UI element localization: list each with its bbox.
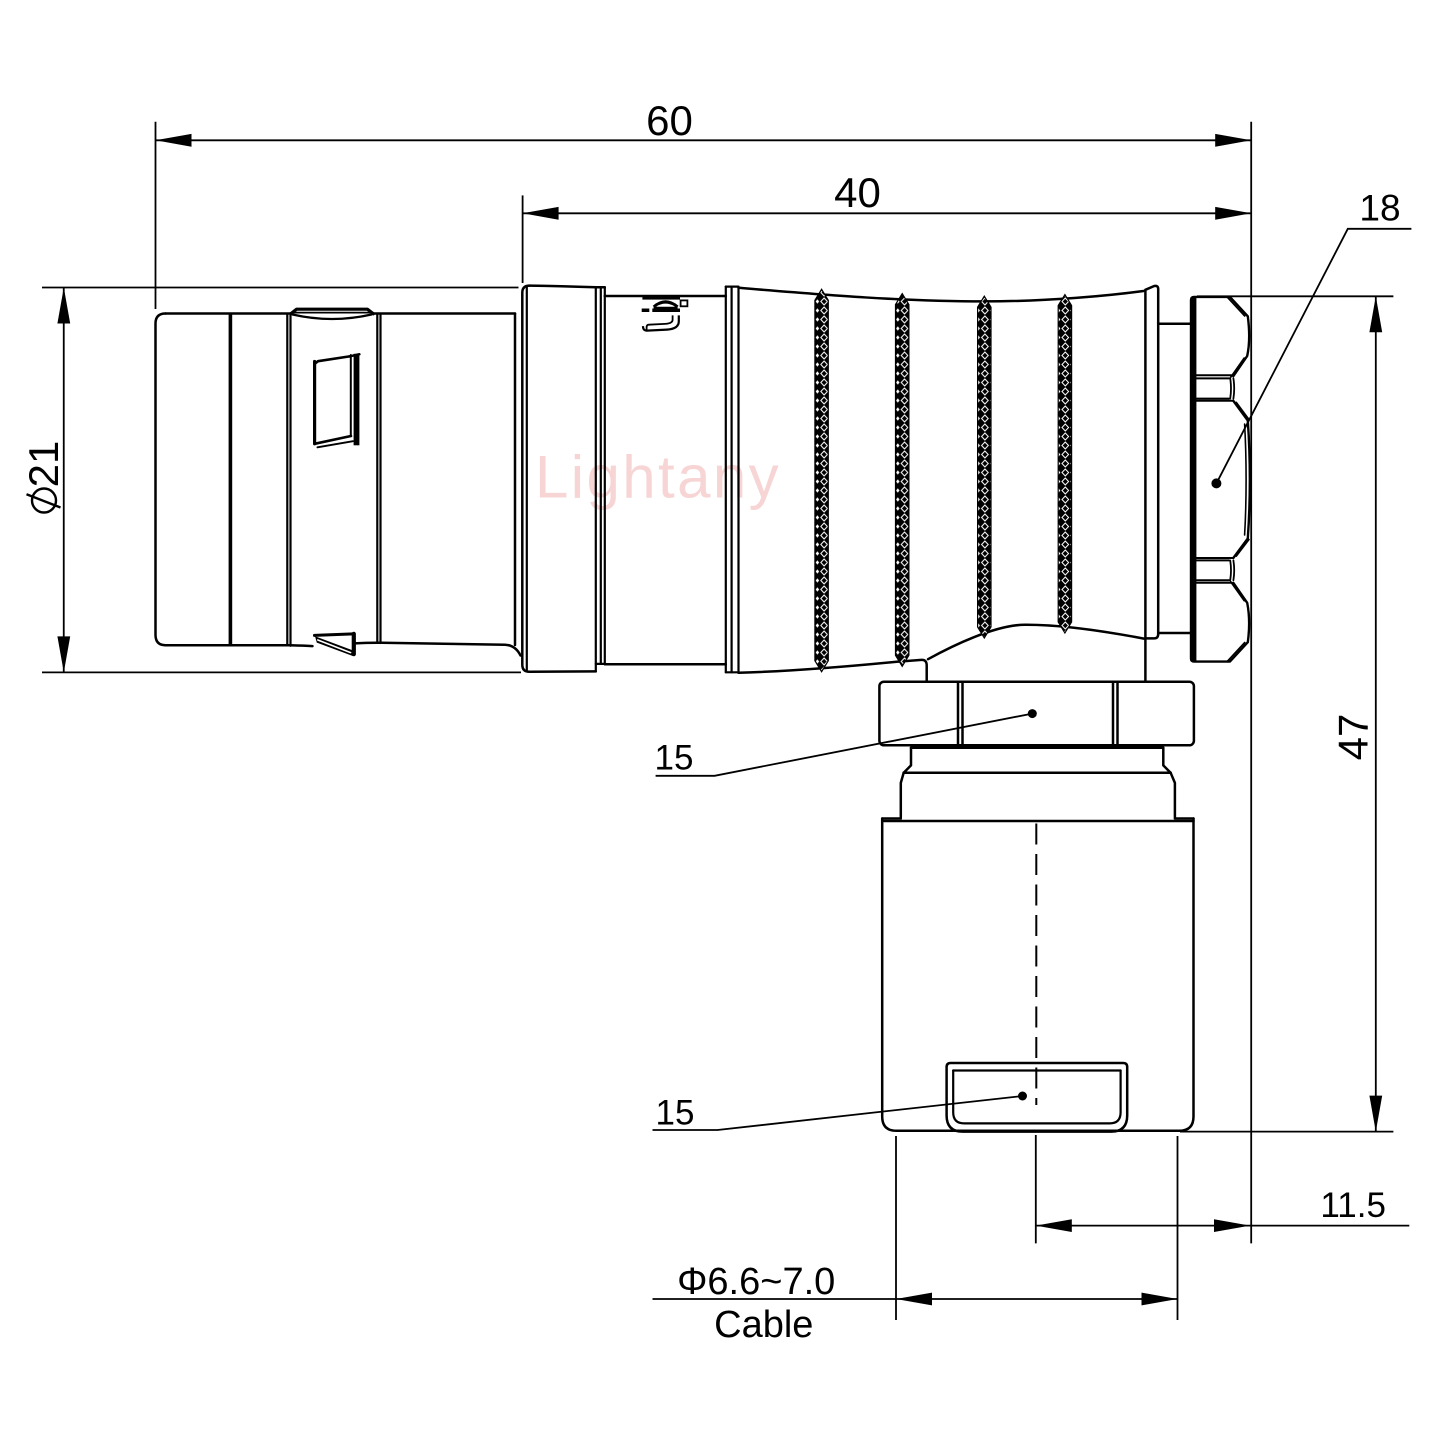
svg-text:40: 40 [834, 169, 881, 216]
svg-text:Lightany: Lightany [535, 444, 781, 511]
svg-text:21: 21 [20, 441, 67, 488]
svg-text:15: 15 [655, 739, 694, 778]
svg-text:60: 60 [646, 97, 693, 144]
svg-text:Φ6.6~7.0: Φ6.6~7.0 [677, 1261, 835, 1303]
svg-text:18: 18 [1359, 188, 1400, 229]
svg-text:15: 15 [656, 1094, 695, 1133]
svg-text:11.5: 11.5 [1320, 1186, 1386, 1225]
svg-text:47: 47 [1330, 714, 1377, 761]
svg-text:Cable: Cable [714, 1304, 813, 1346]
